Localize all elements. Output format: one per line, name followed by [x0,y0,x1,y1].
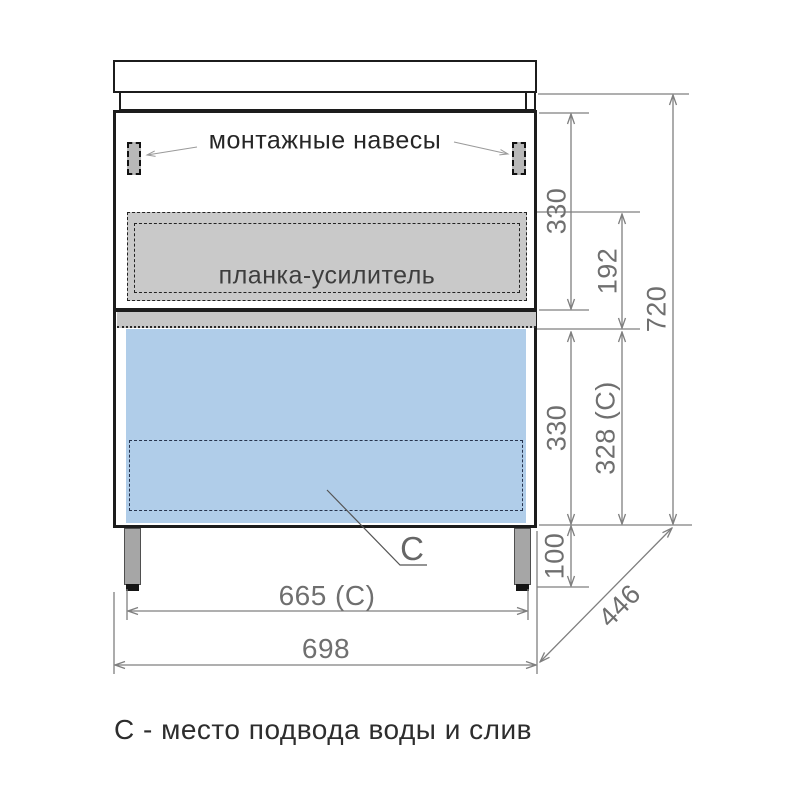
leg-left [124,528,141,585]
dim-720: 720 [642,286,673,333]
mounting-hanger-left [127,142,141,175]
label-c-marker: С [400,530,424,568]
leg-foot-right [516,584,529,591]
gap-inner-line [525,93,527,110]
mounting-hanger-right [512,142,526,175]
carcass-band [117,312,536,328]
dim-192: 192 [593,248,624,295]
dim-446: 446 [593,579,648,634]
dim-lower-330: 330 [542,405,573,452]
countertop-cabinet-gap [119,92,536,111]
dim-100: 100 [540,533,571,580]
drawing-caption: С - место подвода воды и слив [114,714,532,746]
leg-right [514,528,531,585]
section-divider-line [114,308,536,312]
label-mounting-hangers: монтажные навесы [209,127,441,156]
dim-328: 328 (С) [591,381,622,475]
water-connection-zone-outline [129,440,523,511]
dim-698: 698 [302,633,350,665]
dim-665: 665 (С) [279,580,376,612]
leg-foot-left [126,584,139,591]
sink-countertop [113,60,537,93]
dim-upper-330: 330 [542,188,573,235]
vanity-cabinet-technical-drawing: монтажные навесы планка-усилитель С 330 … [0,0,800,800]
label-reinforcement-bar: планка-усилитель [219,262,436,291]
